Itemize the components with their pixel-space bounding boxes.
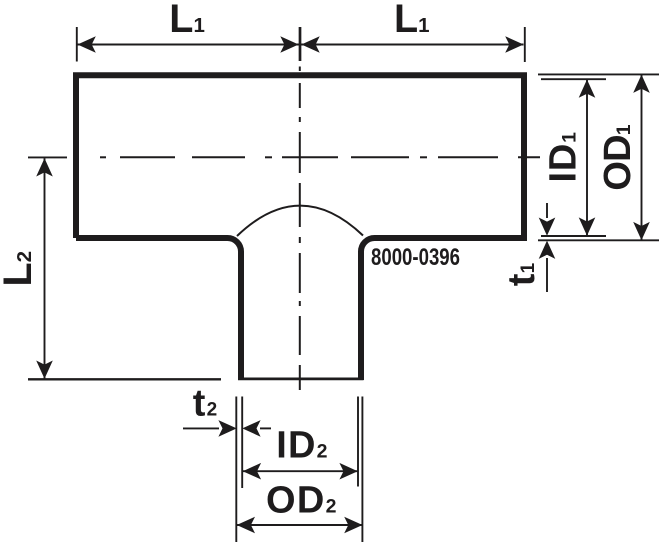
svg-text:8000-0396: 8000-0396 [371, 242, 460, 270]
